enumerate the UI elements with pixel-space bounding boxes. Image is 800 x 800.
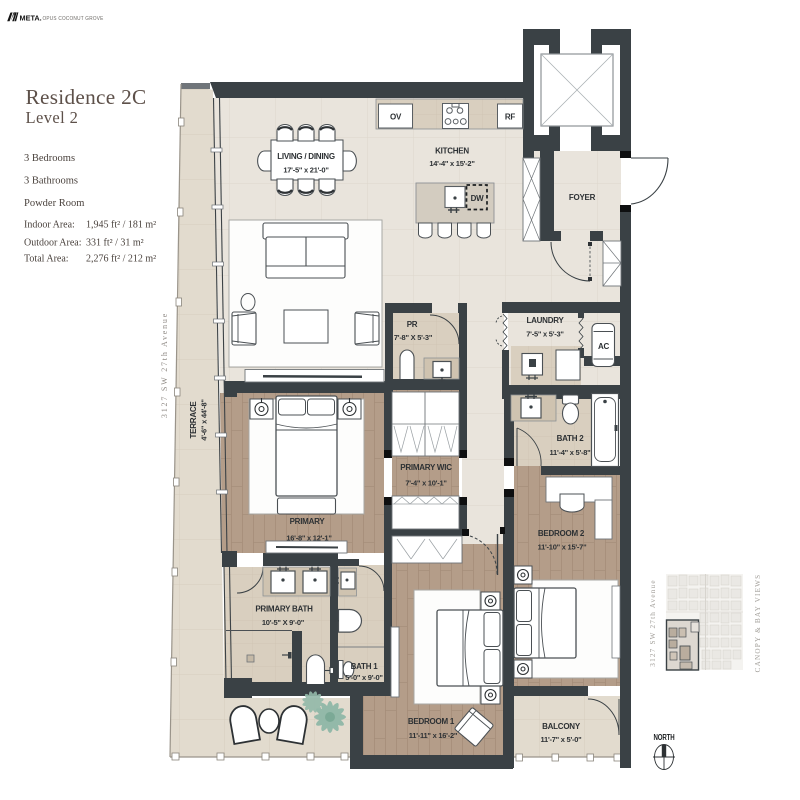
svg-text:Indoor Area:: Indoor Area:: [24, 220, 75, 231]
svg-text:11'-10" x 15'-7": 11'-10" x 15'-7": [538, 543, 587, 552]
svg-text:AC: AC: [598, 342, 610, 351]
svg-text:Outdoor Area:: Outdoor Area:: [24, 238, 82, 249]
svg-text:7'-4" x 10'-1": 7'-4" x 10'-1": [405, 479, 447, 488]
svg-text:PR: PR: [407, 320, 418, 329]
svg-text:3 Bedrooms: 3 Bedrooms: [24, 153, 75, 164]
svg-text:3 Bathrooms: 3 Bathrooms: [24, 176, 78, 187]
svg-text:OPUS COCONUT GROVE: OPUS COCONUT GROVE: [43, 16, 104, 22]
svg-text:11'-4" x 5'-8": 11'-4" x 5'-8": [550, 448, 592, 457]
svg-text:CANOPY & BAY VIEWS: CANOPY & BAY VIEWS: [754, 574, 762, 673]
svg-text:TERRACE: TERRACE: [189, 401, 198, 439]
svg-text:BATH 1: BATH 1: [351, 662, 379, 671]
svg-text:3127 SW 27th Avenue: 3127 SW 27th Avenue: [649, 579, 657, 666]
svg-text:331 ft² / 31 m²: 331 ft² / 31 m²: [86, 238, 144, 249]
svg-text:3127 SW 27th Avenue: 3127 SW 27th Avenue: [160, 312, 169, 418]
svg-text:10'-5" X 9'-0": 10'-5" X 9'-0": [262, 618, 305, 627]
svg-text:11'-7" x 5'-0": 11'-7" x 5'-0": [541, 735, 583, 744]
svg-text:7'-5" x 5'-3": 7'-5" x 5'-3": [526, 330, 564, 339]
svg-text:BEDROOM 1: BEDROOM 1: [408, 717, 455, 726]
svg-text:PRIMARY BATH: PRIMARY BATH: [255, 605, 313, 614]
svg-text:14'-4" x 15'-2": 14'-4" x 15'-2": [429, 159, 475, 168]
svg-text:Residence 2C: Residence 2C: [26, 85, 147, 109]
svg-text:7'-8" X 5'-3": 7'-8" X 5'-3": [394, 333, 433, 342]
svg-text:BATH 2: BATH 2: [557, 434, 585, 443]
svg-text:RF: RF: [505, 113, 516, 122]
svg-text:KITCHEN: KITCHEN: [435, 147, 469, 156]
svg-text:17'-5" x 21'-0": 17'-5" x 21'-0": [283, 166, 329, 175]
svg-text:PRIMARY: PRIMARY: [290, 517, 326, 526]
svg-text:PRIMARY WIC: PRIMARY WIC: [400, 463, 452, 472]
svg-text:DW: DW: [471, 194, 485, 203]
svg-text:META.: META.: [20, 14, 42, 23]
svg-text:2,276 ft² / 212 m²: 2,276 ft² / 212 m²: [86, 254, 156, 265]
svg-text:4'-6" x 44'-8": 4'-6" x 44'-8": [200, 399, 209, 441]
svg-text:Level 2: Level 2: [26, 108, 79, 127]
svg-text:Powder Room: Powder Room: [24, 198, 84, 209]
svg-text:LIVING / DINING: LIVING / DINING: [277, 152, 335, 161]
svg-text:1,945 ft² / 181 m²: 1,945 ft² / 181 m²: [86, 220, 156, 231]
svg-text:FOYER: FOYER: [569, 193, 596, 202]
svg-text:5'-0" x 9'-0": 5'-0" x 9'-0": [345, 673, 383, 682]
svg-text:Total Area:: Total Area:: [24, 254, 69, 265]
svg-text:NORTH: NORTH: [654, 733, 675, 742]
svg-text:LAUNDRY: LAUNDRY: [526, 316, 564, 325]
svg-text:BALCONY: BALCONY: [542, 722, 581, 731]
svg-text:BEDROOM 2: BEDROOM 2: [538, 529, 585, 538]
svg-text:11'-11" x 16'-2": 11'-11" x 16'-2": [409, 731, 458, 740]
svg-text:OV: OV: [390, 113, 402, 122]
